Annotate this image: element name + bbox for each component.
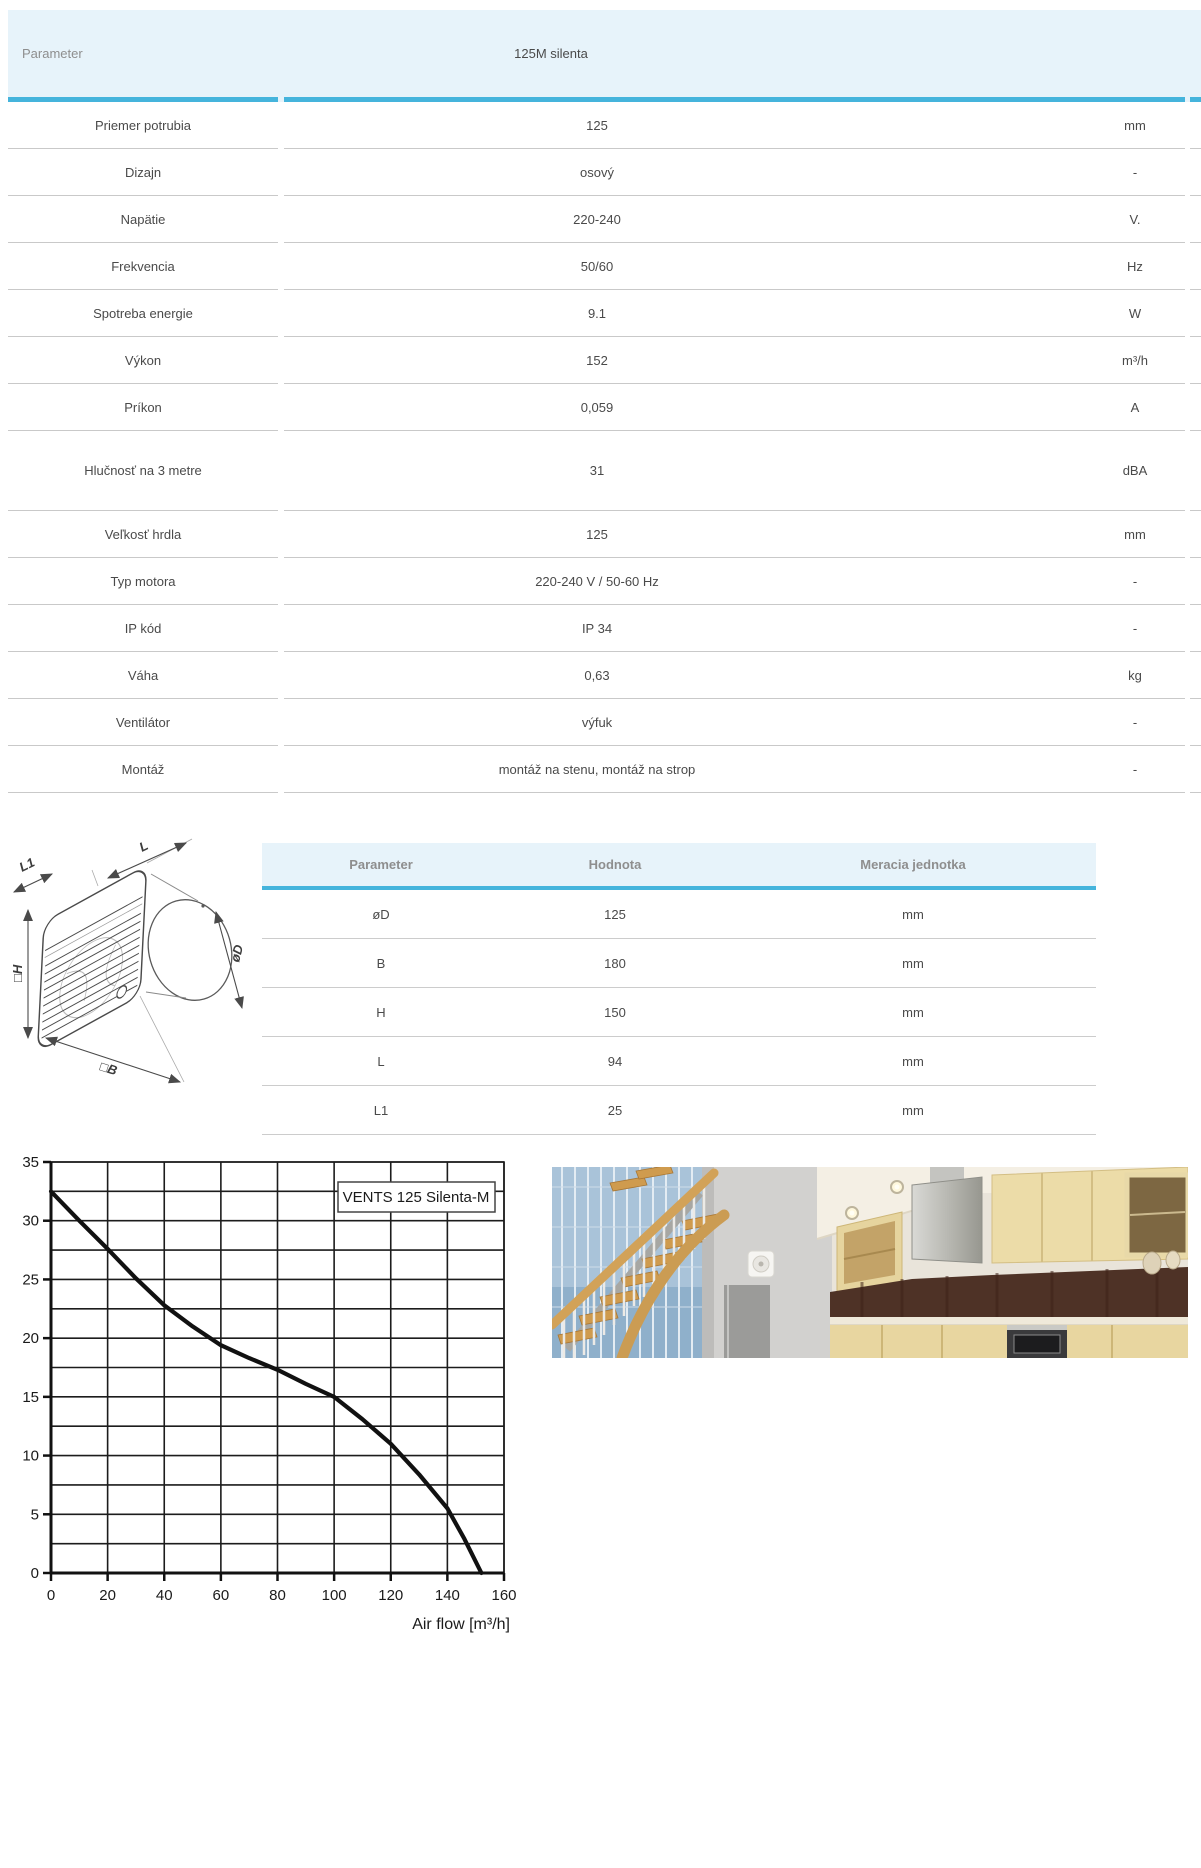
spec-row-sliver (1190, 337, 1201, 384)
dim-row-value: 180 (500, 939, 730, 987)
dim-label-h: □H (10, 964, 25, 982)
spec-row-unit: dBA (1085, 463, 1185, 478)
spec-row-sliver (1190, 243, 1201, 290)
spec-row-sliver (1190, 384, 1201, 431)
dimensions-table-row: øD125mm (262, 890, 1096, 939)
spec-row-value: IP 34 (284, 621, 910, 636)
spec-row-unit: - (1085, 165, 1185, 180)
spec-row-unit: Hz (1085, 259, 1185, 274)
dimensions-table-header: Parameter Hodnota Meracia jednotka (262, 843, 1096, 890)
product-spec-page: { "colors":{"accent_line":"#45b4dc","hea… (0, 0, 1201, 1868)
spec-table: Parameter 125M silenta Priemer potrubia1… (8, 10, 1201, 793)
spec-row-unit: - (1085, 574, 1185, 589)
chart-legend-label: VENTS 125 Silenta-M (343, 1189, 490, 1206)
dim-row-value: 125 (500, 890, 730, 938)
spec-row-sliver (1190, 511, 1201, 558)
dimensions-table: Parameter Hodnota Meracia jednotka øD125… (262, 843, 1096, 1135)
dim-row-parameter: øD (262, 890, 500, 938)
spec-row-label: Montáž (8, 746, 278, 793)
spec-table-row: Typ motora220-240 V / 50-60 Hz- (8, 558, 1201, 605)
dim-header-value: Hodnota (500, 843, 730, 886)
spec-row-label: Váha (8, 652, 278, 699)
chart-x-tick-label: 20 (99, 1587, 116, 1604)
spec-row-unit: - (1085, 621, 1185, 636)
chart-y-tick-label: 0 (31, 1565, 39, 1582)
spec-table-row: Ventilátorvýfuk- (8, 699, 1201, 746)
photo-wall-fan (748, 1251, 774, 1277)
spec-row-sliver (1190, 746, 1201, 793)
dim-label-l1: L1 (17, 855, 37, 875)
chart-x-tick-label: 140 (435, 1587, 460, 1604)
spec-table-row: Váha0,63kg (8, 652, 1201, 699)
performance-chart: 05101520253035020406080100120140160Air f… (0, 1150, 520, 1650)
dim-label-l: L (137, 838, 151, 855)
spec-row-value-cell: 220-240V. (284, 196, 1185, 243)
spec-row-value: 0,059 (284, 400, 910, 415)
kitchen-photo (552, 1167, 1188, 1358)
spec-row-value: 220-240 V / 50-60 Hz (284, 574, 910, 589)
spec-row-sliver (1190, 431, 1201, 511)
spec-row-value: 0,63 (284, 668, 910, 683)
spec-table-row: IP kódIP 34- (8, 605, 1201, 652)
spec-row-label: Výkon (8, 337, 278, 384)
dimensions-table-row: B180mm (262, 939, 1096, 988)
spec-row-value: osový (284, 165, 910, 180)
chart-x-tick-label: 60 (213, 1587, 230, 1604)
dim-row-unit: mm (730, 1086, 1096, 1134)
dim-row-parameter: L1 (262, 1086, 500, 1134)
spec-row-label: Príkon (8, 384, 278, 431)
spec-row-value-cell: 50/60Hz (284, 243, 1185, 290)
spec-row-value-cell: IP 34- (284, 605, 1185, 652)
spec-header-product-cell: 125M silenta (284, 10, 1185, 102)
spec-row-value-cell: montáž na stenu, montáž na strop- (284, 746, 1185, 793)
photo-counter-and-base-cabinets (830, 1317, 1188, 1358)
spec-row-value: výfuk (284, 715, 910, 730)
dim-row-unit: mm (730, 1037, 1096, 1085)
dimensions-table-body: øD125mmB180mmH150mmL94mmL125mm (262, 890, 1096, 1135)
spec-row-sliver (1190, 290, 1201, 337)
spec-row-value: 125 (284, 118, 910, 133)
spec-header-sliver (1190, 10, 1201, 102)
chart-x-tick-label: 40 (156, 1587, 173, 1604)
spec-row-value-cell: výfuk- (284, 699, 1185, 746)
dimensions-table-row: L94mm (262, 1037, 1096, 1086)
dim-row-unit: mm (730, 890, 1096, 938)
dim-row-value: 150 (500, 988, 730, 1036)
spec-row-value-cell: 0,059A (284, 384, 1185, 431)
fan-dimension-diagram: L1 L □H øD □B (8, 830, 256, 1092)
spec-row-value: 220-240 (284, 212, 910, 227)
spec-table-row: Dizajnosový- (8, 149, 1201, 196)
dim-row-unit: mm (730, 988, 1096, 1036)
spec-row-unit: m³/h (1085, 353, 1185, 368)
spec-row-label: Spotreba energie (8, 290, 278, 337)
spec-row-value-cell: 125mm (284, 511, 1185, 558)
spec-table-row: Veľkosť hrdla125mm (8, 511, 1201, 558)
dim-label-d: øD (227, 942, 246, 963)
dim-row-parameter: L (262, 1037, 500, 1085)
spec-table-header: Parameter 125M silenta (8, 10, 1201, 102)
spec-row-unit: V. (1085, 212, 1185, 227)
spec-row-value: 9.1 (284, 306, 910, 321)
spec-row-unit: mm (1085, 527, 1185, 542)
spec-row-sliver (1190, 196, 1201, 243)
spec-row-sliver (1190, 149, 1201, 196)
kitchen-photo-image (552, 1167, 1188, 1358)
chart-y-tick-label: 15 (22, 1389, 39, 1406)
spec-header-parameter: Parameter (8, 10, 278, 102)
dim-row-unit: mm (730, 939, 1096, 987)
spec-row-label: Veľkosť hrdla (8, 511, 278, 558)
spec-header-product: 125M silenta (284, 46, 818, 61)
chart-x-tick-label: 80 (269, 1587, 286, 1604)
spec-row-unit: kg (1085, 668, 1185, 683)
chart-y-tick-label: 25 (22, 1271, 39, 1288)
dimensions-table-row: H150mm (262, 988, 1096, 1037)
chart-x-tick-label: 0 (47, 1587, 55, 1604)
dim-header-parameter: Parameter (262, 843, 500, 886)
chart-y-tick-label: 5 (31, 1506, 39, 1523)
spec-row-label: Frekvencia (8, 243, 278, 290)
dim-row-parameter: H (262, 988, 500, 1036)
spec-table-row: Príkon0,059A (8, 384, 1201, 431)
chart-x-axis-label: Air flow [m³/h] (412, 1616, 510, 1633)
spec-row-value-cell: 0,63kg (284, 652, 1185, 699)
spec-row-unit: mm (1085, 118, 1185, 133)
spec-row-value-cell: osový- (284, 149, 1185, 196)
performance-curve (51, 1191, 481, 1573)
spec-row-label: Hlučnosť na 3 metre (8, 431, 278, 511)
fan-front-panel (38, 865, 147, 1052)
spec-row-unit: - (1085, 762, 1185, 777)
chart-x-tick-label: 100 (322, 1587, 347, 1604)
spec-row-value: 125 (284, 527, 910, 542)
spec-row-value: 152 (284, 353, 910, 368)
spec-row-label: Ventilátor (8, 699, 278, 746)
spec-row-sliver (1190, 102, 1201, 149)
fan-duct (137, 874, 244, 1010)
spec-row-value: 31 (284, 463, 910, 478)
spec-row-label: Priemer potrubia (8, 102, 278, 149)
spec-table-body: Priemer potrubia125mmDizajnosový-Napätie… (8, 102, 1201, 793)
spec-row-value: montáž na stenu, montáž na strop (284, 762, 910, 777)
spec-row-value-cell: 31dBA (284, 431, 1185, 511)
spec-row-unit: - (1085, 715, 1185, 730)
spec-row-sliver (1190, 652, 1201, 699)
dim-row-value: 94 (500, 1037, 730, 1085)
spec-row-value-cell: 125mm (284, 102, 1185, 149)
spec-table-row: Hlučnosť na 3 metre31dBA (8, 431, 1201, 511)
spec-row-value-cell: 220-240 V / 50-60 Hz- (284, 558, 1185, 605)
spec-row-value-cell: 152m³/h (284, 337, 1185, 384)
dim-header-unit: Meracia jednotka (730, 843, 1096, 886)
chart-x-tick-label: 160 (491, 1587, 516, 1604)
spec-table-row: Frekvencia50/60Hz (8, 243, 1201, 290)
spec-row-unit: W (1085, 306, 1185, 321)
spec-row-sliver (1190, 699, 1201, 746)
chart-y-tick-label: 30 (22, 1213, 39, 1230)
spec-table-row: Výkon152m³/h (8, 337, 1201, 384)
spec-table-row: Napätie220-240V. (8, 196, 1201, 243)
spec-row-label: IP kód (8, 605, 278, 652)
spec-row-value: 50/60 (284, 259, 910, 274)
spec-row-sliver (1190, 558, 1201, 605)
spec-row-label: Typ motora (8, 558, 278, 605)
spec-row-unit: A (1085, 400, 1185, 415)
chart-y-tick-label: 10 (22, 1448, 39, 1465)
spec-row-label: Napätie (8, 196, 278, 243)
spec-table-row: Priemer potrubia125mm (8, 102, 1201, 149)
spec-table-row: Spotreba energie9.1W (8, 290, 1201, 337)
chart-x-tick-label: 120 (378, 1587, 403, 1604)
chart-y-tick-label: 35 (22, 1154, 39, 1171)
spec-table-row: Montážmontáž na stenu, montáž na strop- (8, 746, 1201, 793)
dim-row-value: 25 (500, 1086, 730, 1134)
spec-row-value-cell: 9.1W (284, 290, 1185, 337)
dimensions-table-row: L125mm (262, 1086, 1096, 1135)
spec-row-label: Dizajn (8, 149, 278, 196)
chart-y-tick-label: 20 (22, 1330, 39, 1347)
dim-row-parameter: B (262, 939, 500, 987)
spec-row-sliver (1190, 605, 1201, 652)
